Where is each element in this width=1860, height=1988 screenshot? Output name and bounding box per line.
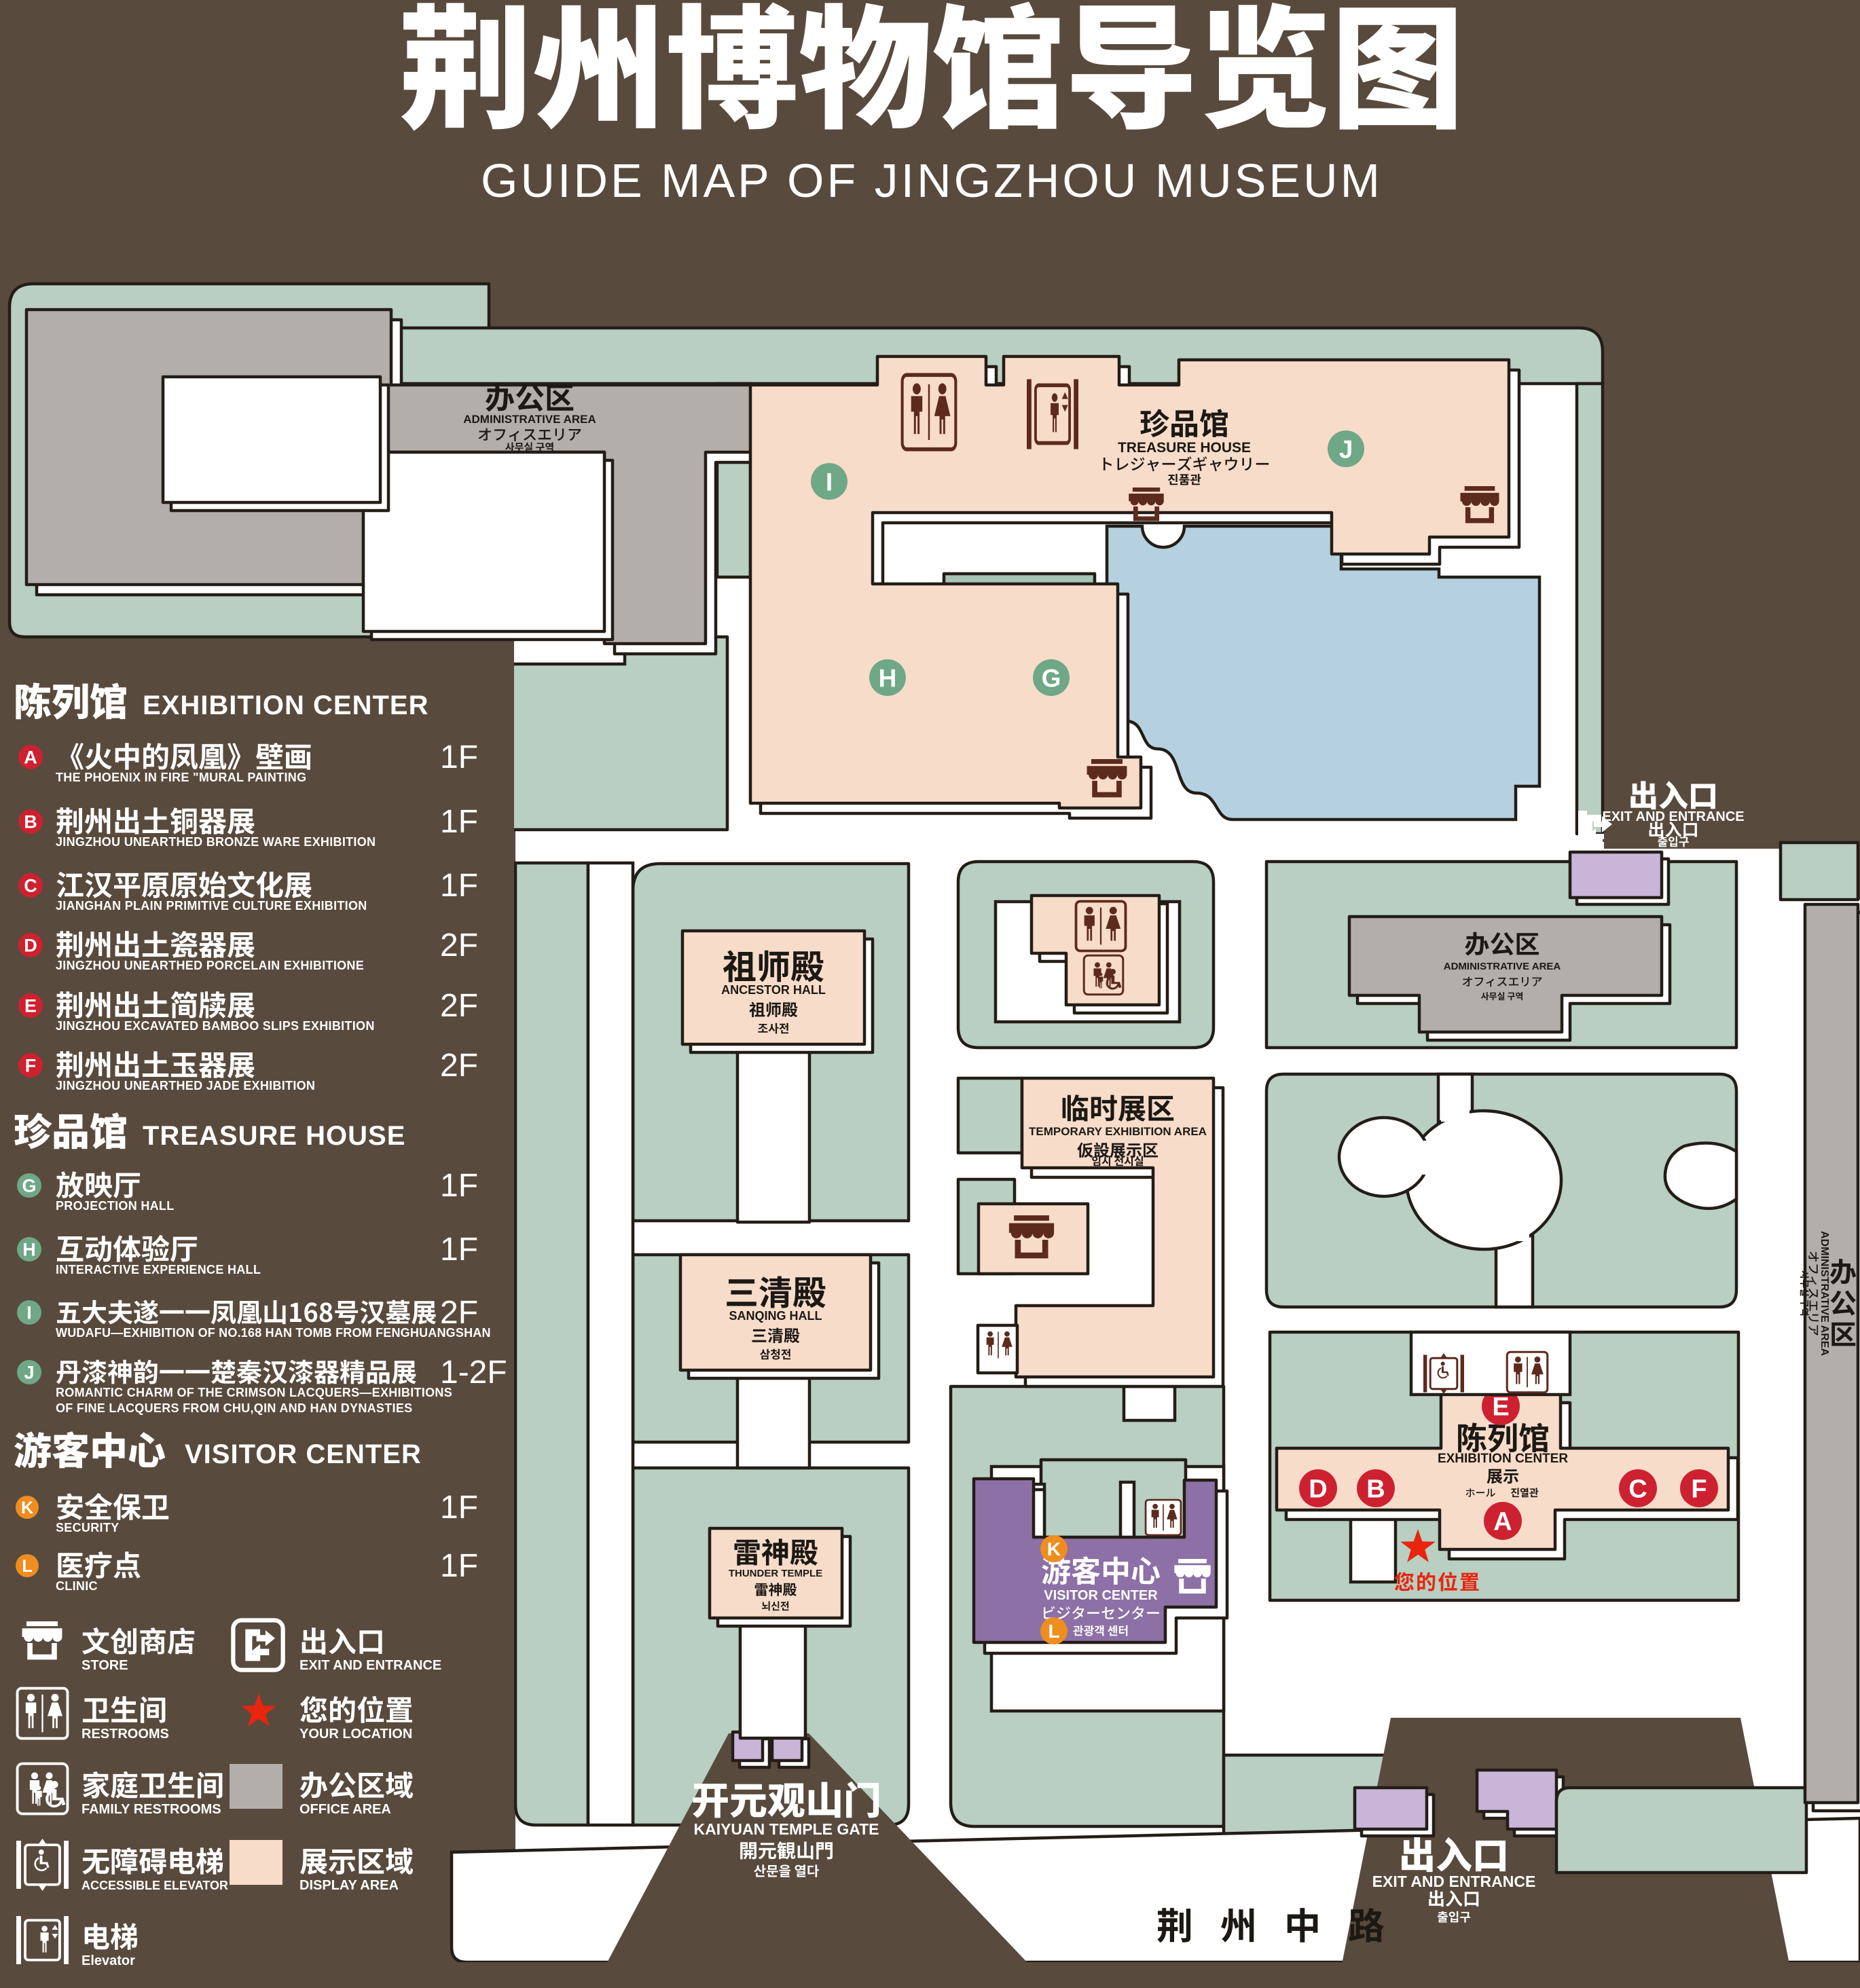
svg-text:I: I xyxy=(826,468,833,496)
svg-text:A: A xyxy=(1493,1508,1512,1536)
svg-text:ADMINISTRATIVE AREA: ADMINISTRATIVE AREA xyxy=(1819,1231,1830,1356)
svg-text:B: B xyxy=(1366,1475,1385,1504)
svg-text:INTERACTIVE EXPERIENCE HALL: INTERACTIVE EXPERIENCE HALL xyxy=(56,1263,261,1276)
svg-text:F: F xyxy=(1691,1475,1707,1504)
svg-text:H: H xyxy=(22,1240,36,1260)
svg-text:G: G xyxy=(1042,664,1061,692)
svg-text:JINGZHOU EXCAVATED BAMBOO SLIP: JINGZHOU EXCAVATED BAMBOO SLIPS EXHIBITI… xyxy=(56,1019,375,1033)
svg-text:EXHIBITION CENTER: EXHIBITION CENTER xyxy=(143,691,428,720)
svg-text:Elevator: Elevator xyxy=(81,1953,135,1968)
svg-text:JINGZHOU UNEARTHED JADE EXHIBI: JINGZHOU UNEARTHED JADE EXHIBITION xyxy=(56,1079,315,1092)
svg-text:C: C xyxy=(24,876,37,896)
svg-text:E: E xyxy=(1492,1393,1509,1422)
svg-text:EXIT AND ENTRANCE: EXIT AND ENTRANCE xyxy=(299,1658,441,1673)
svg-text:THE PHOENIX IN FIRE "MURAL PAI: THE PHOENIX IN FIRE "MURAL PAINTING xyxy=(56,771,306,784)
svg-text:1F: 1F xyxy=(440,868,478,904)
svg-text:K: K xyxy=(1047,1539,1061,1560)
svg-text:RESTROOMS: RESTROOMS xyxy=(81,1727,169,1742)
svg-text:ANCESTOR HALL: ANCESTOR HALL xyxy=(721,983,826,997)
svg-text:1F: 1F xyxy=(440,1548,478,1584)
svg-text:C: C xyxy=(1628,1475,1647,1504)
svg-text:EXIT AND ENTRANCE: EXIT AND ENTRANCE xyxy=(1372,1873,1536,1890)
svg-text:SECURITY: SECURITY xyxy=(56,1521,119,1534)
svg-text:J: J xyxy=(24,1363,34,1383)
svg-text:2F: 2F xyxy=(440,988,478,1024)
svg-text:1F: 1F xyxy=(440,1168,478,1204)
svg-text:D: D xyxy=(24,936,37,956)
svg-text:STORE: STORE xyxy=(81,1658,128,1673)
svg-text:EXHIBITION CENTER: EXHIBITION CENTER xyxy=(1438,1452,1568,1466)
svg-text:GUIDE MAP OF JINGZHOU MUSEUM: GUIDE MAP OF JINGZHOU MUSEUM xyxy=(481,154,1383,207)
svg-text:JINGZHOU UNEARTHED PORCELAIN E: JINGZHOU UNEARTHED PORCELAIN EXHIBITIONE xyxy=(56,959,364,972)
svg-text:H: H xyxy=(879,664,897,692)
svg-text:K: K xyxy=(21,1498,33,1517)
svg-text:D: D xyxy=(1309,1475,1327,1504)
svg-text:TREASURE HOUSE: TREASURE HOUSE xyxy=(143,1121,405,1151)
svg-text:ADMINISTRATIVE AREA: ADMINISTRATIVE AREA xyxy=(1444,961,1561,972)
svg-text:WUDAFU—EXHIBITION OF NO.168 HA: WUDAFU—EXHIBITION OF NO.168 HAN TOMB FRO… xyxy=(56,1326,491,1340)
svg-text:A: A xyxy=(24,748,37,768)
svg-text:CLINIC: CLINIC xyxy=(56,1579,98,1593)
svg-text:DISPLAY AREA: DISPLAY AREA xyxy=(299,1878,399,1893)
svg-text:1F: 1F xyxy=(440,739,478,775)
svg-text:1F: 1F xyxy=(440,804,478,840)
svg-text:THUNDER TEMPLE: THUNDER TEMPLE xyxy=(729,1568,822,1579)
svg-text:L: L xyxy=(1048,1621,1059,1642)
svg-text:F: F xyxy=(25,1056,37,1076)
svg-text:JIANGHAN PLAIN PRIMITIVE CULTU: JIANGHAN PLAIN PRIMITIVE CULTURE EXHIBIT… xyxy=(56,899,367,913)
svg-text:SANQING HALL: SANQING HALL xyxy=(729,1309,822,1323)
svg-text:PROJECTION HALL: PROJECTION HALL xyxy=(56,1199,175,1213)
svg-text:1-2F: 1-2F xyxy=(440,1355,507,1391)
svg-text:2F: 2F xyxy=(440,1295,478,1331)
svg-text:E: E xyxy=(24,996,37,1016)
svg-text:OF FINE LACQUERS FROM CHU,QIN: OF FINE LACQUERS FROM CHU,QIN AND HAN DY… xyxy=(56,1401,412,1415)
svg-text:2F: 2F xyxy=(440,927,478,963)
svg-text:1F: 1F xyxy=(440,1232,478,1268)
svg-text:FAMILY RESTROOMS: FAMILY RESTROOMS xyxy=(81,1802,221,1817)
svg-text:OFFICE AREA: OFFICE AREA xyxy=(299,1802,391,1817)
svg-text:KAIYUAN TEMPLE GATE: KAIYUAN TEMPLE GATE xyxy=(693,1820,879,1838)
svg-text:VISITOR CENTER: VISITOR CENTER xyxy=(185,1439,422,1469)
svg-text:I: I xyxy=(26,1303,32,1323)
svg-text:TREASURE HOUSE: TREASURE HOUSE xyxy=(1118,440,1251,456)
svg-text:EXIT AND ENTRANCE: EXIT AND ENTRANCE xyxy=(1602,809,1744,824)
svg-text:YOUR LOCATION: YOUR LOCATION xyxy=(299,1727,412,1742)
svg-text:ROMANTIC CHARM OF THE CRIMSON: ROMANTIC CHARM OF THE CRIMSON LACQUERS—E… xyxy=(56,1386,452,1399)
svg-text:VISITOR CENTER: VISITOR CENTER xyxy=(1044,1588,1158,1603)
svg-text:ADMINISTRATIVE AREA: ADMINISTRATIVE AREA xyxy=(463,413,596,426)
svg-text:JINGZHOU UNEARTHED BRONZE WARE: JINGZHOU UNEARTHED BRONZE WARE EXHIBITIO… xyxy=(56,835,376,849)
svg-text:ACCESSIBLE ELEVATOR: ACCESSIBLE ELEVATOR xyxy=(81,1879,228,1892)
svg-text:2F: 2F xyxy=(440,1048,478,1084)
svg-text:1F: 1F xyxy=(440,1490,478,1526)
svg-text:G: G xyxy=(22,1176,36,1196)
svg-text:B: B xyxy=(24,812,37,832)
svg-text:J: J xyxy=(1339,435,1353,463)
svg-text:L: L xyxy=(22,1557,32,1576)
svg-text:TEMPORARY EXHIBITION AREA: TEMPORARY EXHIBITION AREA xyxy=(1029,1125,1207,1138)
